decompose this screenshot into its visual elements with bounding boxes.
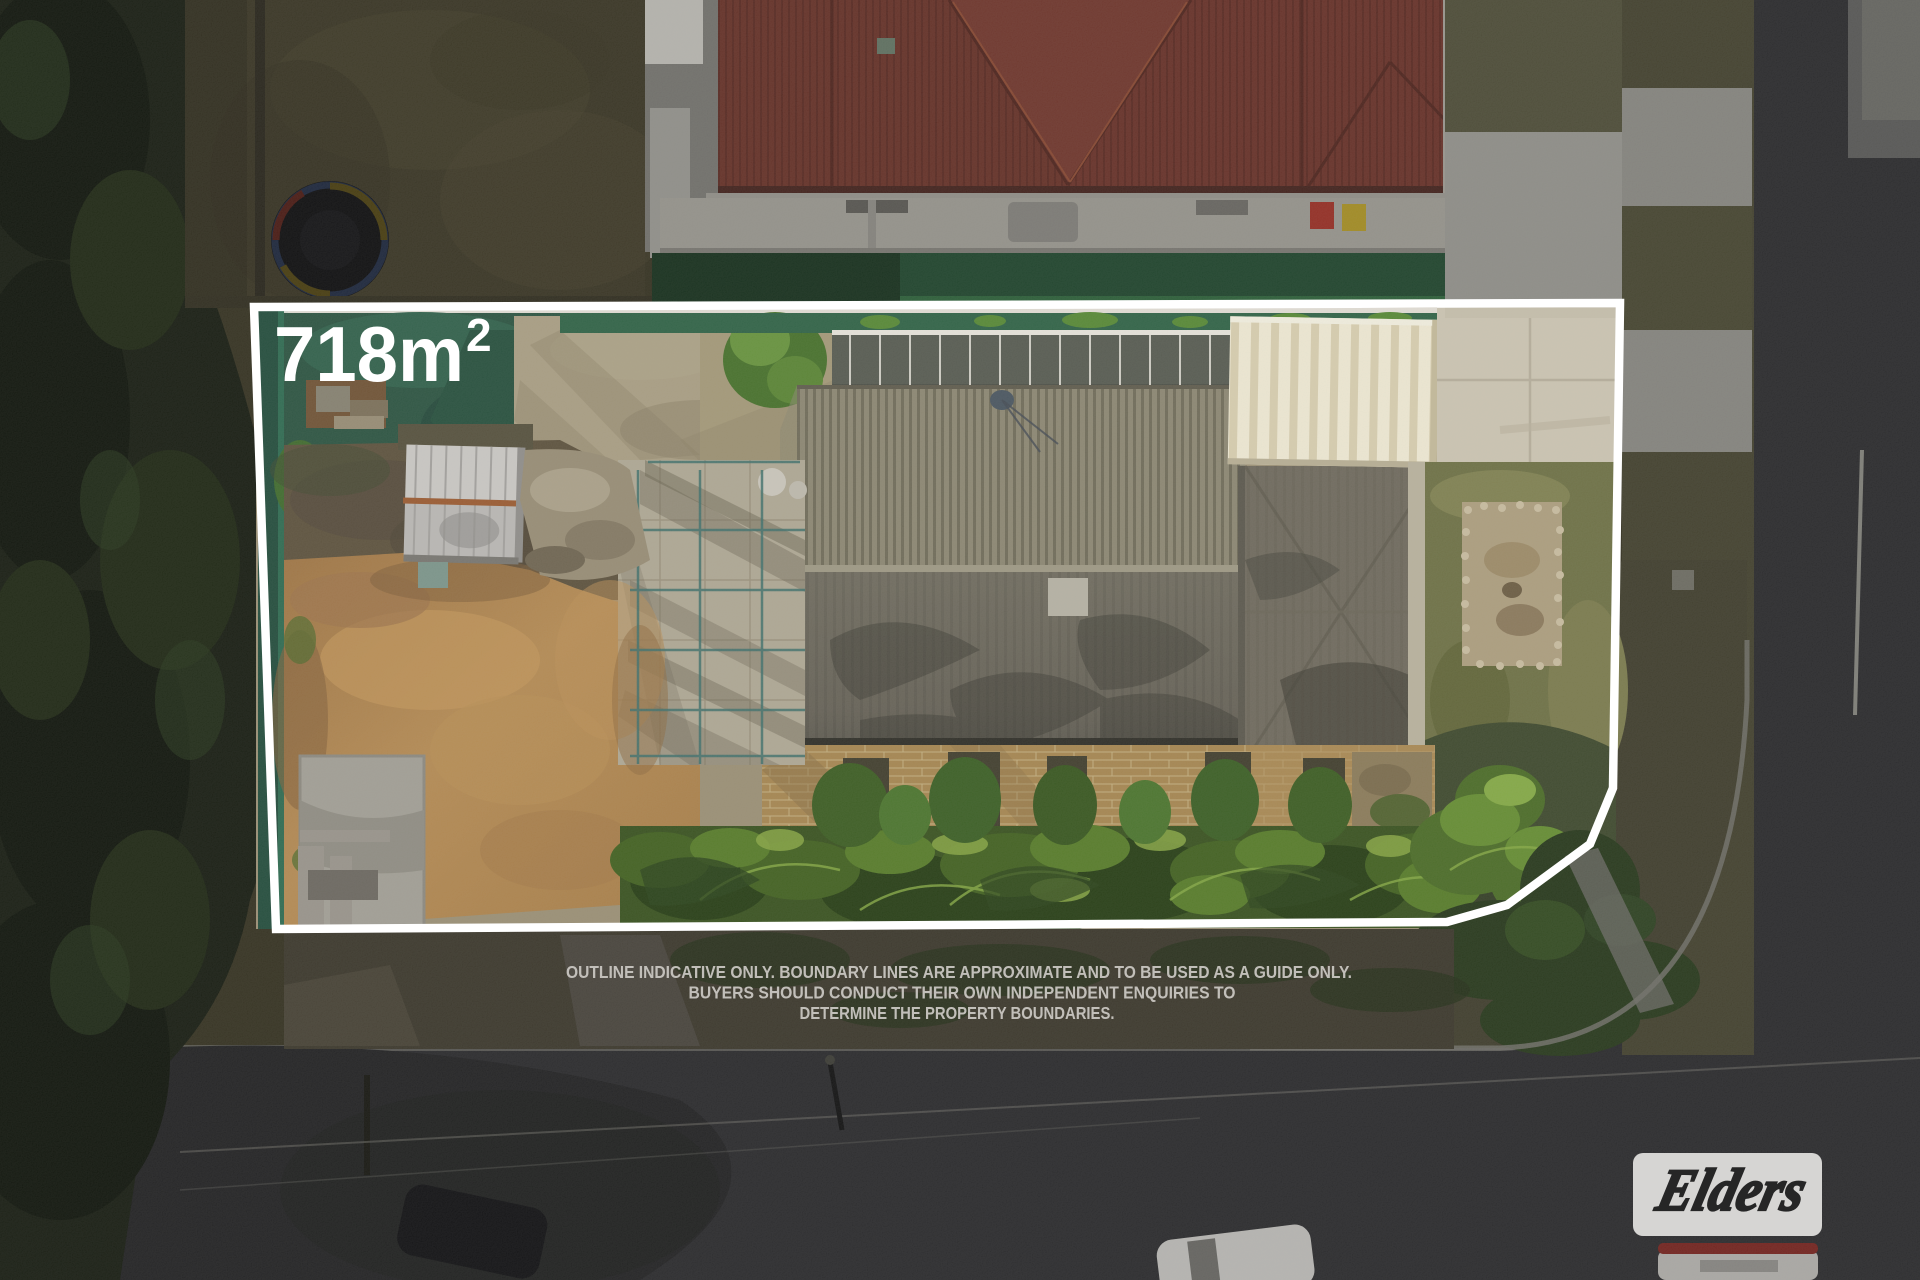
svg-text:Elders: Elders xyxy=(1650,1158,1813,1224)
svg-text:2: 2 xyxy=(466,309,492,361)
svg-text:OUTLINE INDICATIVE ONLY. BOUND: OUTLINE INDICATIVE ONLY. BOUNDARY LINES … xyxy=(566,962,1352,982)
svg-text:718m: 718m xyxy=(274,310,464,398)
svg-text:DETERMINE THE PROPERTY BOUNDAR: DETERMINE THE PROPERTY BOUNDARIES. xyxy=(800,1003,1115,1023)
svg-text:BUYERS SHOULD CONDUCT THEIR OW: BUYERS SHOULD CONDUCT THEIR OWN INDEPEND… xyxy=(689,983,1236,1003)
